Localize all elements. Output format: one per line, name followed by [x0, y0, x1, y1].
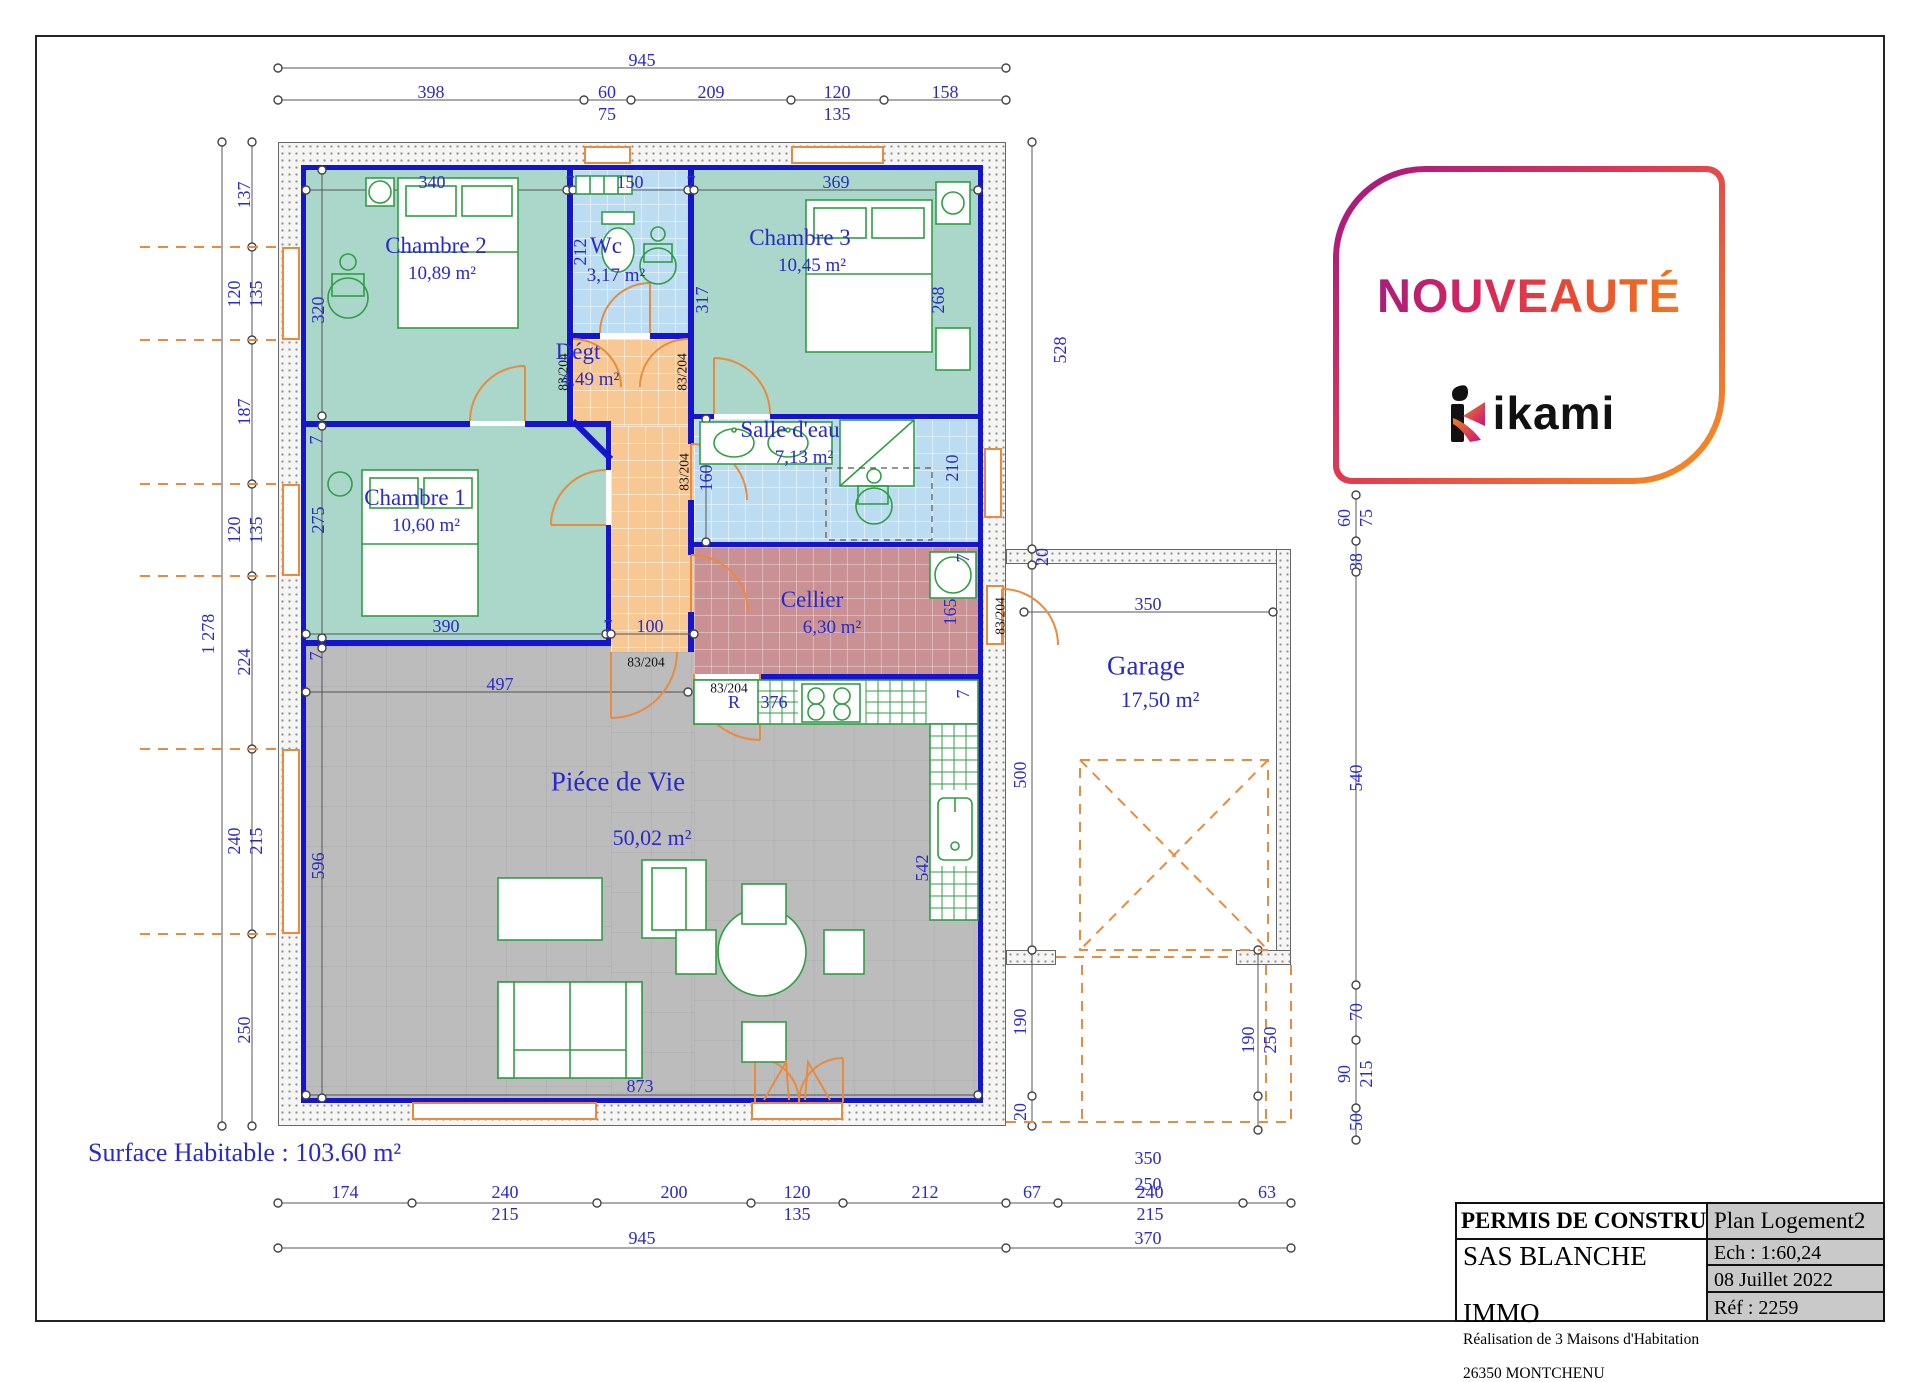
- room-area-wc: 3,17 m²: [587, 265, 645, 287]
- dimension-label: 370: [1135, 1229, 1162, 1247]
- room-name-chambre3: Chambre 3: [749, 225, 851, 251]
- wall: [760, 674, 978, 680]
- dimension-label: 209: [698, 83, 725, 101]
- dimension-label: 540: [1347, 765, 1365, 792]
- garage-wall-right: [1276, 549, 1291, 965]
- dimension-label: 212: [912, 1183, 939, 1201]
- dimension-label: 135: [247, 517, 265, 544]
- titleblock-scale: Ech : 1:60,24: [1706, 1238, 1885, 1266]
- dimension-label: 200: [661, 1183, 688, 1201]
- dimension-label: 224: [235, 649, 253, 676]
- window-chambre2: [282, 247, 300, 340]
- dimension-label: 240: [225, 828, 243, 855]
- garage-wall-stub-right: [1236, 950, 1291, 965]
- room-name-cellier: Cellier: [781, 587, 844, 613]
- dimension-label: 75: [598, 105, 616, 123]
- dimension-label: 250: [235, 1017, 253, 1044]
- dimension-label: 350: [1135, 595, 1162, 613]
- dimension-label: 7: [307, 436, 325, 445]
- dimension-label: 390: [433, 617, 460, 635]
- titleblock-company: SAS BLANCHEIMMO Réalisation de 3 Maisons…: [1455, 1238, 1708, 1322]
- window-chambre3: [791, 146, 884, 164]
- dimension-label: 120: [784, 1183, 811, 1201]
- dimension-label: 369: [823, 173, 850, 191]
- dimension-label: 376: [761, 693, 788, 711]
- wall: [694, 414, 714, 419]
- ikami-logo-icon: [1443, 384, 1487, 442]
- room-name-chambre1: Chambre 1: [364, 485, 466, 511]
- ikami-logo-text: ikami: [1493, 387, 1616, 439]
- dimension-label: 7: [954, 690, 972, 699]
- dimension-label: 500: [1011, 762, 1029, 789]
- room-name-piece-de-vie: Piéce de Vie: [551, 767, 685, 798]
- room-area-chambre3: 10,45 m²: [778, 255, 846, 277]
- dimension-label: 190: [1011, 1009, 1029, 1036]
- dimension-label: 596: [309, 853, 327, 880]
- room-area-degt: 4,49 m²: [561, 369, 619, 391]
- dimension-label: 215: [492, 1205, 519, 1223]
- window-wc: [584, 146, 631, 164]
- room-name-chambre2: Chambre 2: [385, 233, 487, 259]
- room-area-garage: 17,50 m²: [1121, 687, 1200, 713]
- wall: [606, 426, 611, 470]
- door-size-label: 83/204: [710, 681, 748, 695]
- door-size-label: 83/204: [675, 353, 689, 391]
- room-area-cellier: 6,30 m²: [803, 617, 861, 639]
- titleblock-date: 08 Juillet 2022: [1706, 1264, 1885, 1293]
- dimension-label: 190: [1239, 1027, 1257, 1054]
- nouveaute-title: NOUVEAUTÉ: [1339, 268, 1719, 323]
- dimension-label: 158: [932, 83, 959, 101]
- dimension-label: R: [728, 693, 740, 711]
- dimension-label: 135: [824, 105, 851, 123]
- room-chambre2: [306, 170, 567, 421]
- dimension-label: 215: [1137, 1205, 1164, 1223]
- dimension-label: 67: [1023, 1183, 1041, 1201]
- company-name: SAS BLANCHEIMMO: [1463, 1242, 1700, 1327]
- window-sejour-sud: [412, 1102, 597, 1120]
- room-piece-de-vie: [306, 646, 611, 1098]
- room-area-chambre2: 10,89 m²: [408, 263, 476, 285]
- dimension-label: 165: [941, 599, 959, 626]
- dimension-label: 275: [309, 507, 327, 534]
- dimension-label: 542: [913, 855, 931, 882]
- dimension-label: 63: [1258, 1183, 1276, 1201]
- dimension-label: 210: [943, 455, 961, 482]
- dimension-label: 945: [629, 51, 656, 69]
- dimension-label: 215: [1357, 1061, 1375, 1088]
- dimension-label: 7: [687, 173, 696, 191]
- dimension-label: 90: [1335, 1065, 1353, 1083]
- dimension-label: 187: [235, 399, 253, 426]
- dimension-label: 317: [693, 287, 711, 314]
- dimension-label: 873: [627, 1077, 654, 1095]
- room-name-wc: Wc: [590, 233, 622, 259]
- wall: [650, 333, 694, 339]
- dimension-label: 212: [571, 239, 589, 266]
- dimension-label: 75: [1357, 509, 1375, 527]
- window-salle-deau: [984, 448, 1002, 518]
- dimension-label: 398: [418, 83, 445, 101]
- window-chambre1: [282, 484, 300, 576]
- titleblock-doc-type: PERMIS DE CONSTRUIRE: [1455, 1202, 1708, 1240]
- dimension-label: 120: [225, 517, 243, 544]
- dimension-label: 215: [247, 828, 265, 855]
- dimension-label: 135: [784, 1205, 811, 1223]
- wall: [688, 419, 694, 444]
- dimension-label: 60: [1335, 509, 1353, 527]
- dimension-label: 38: [1347, 553, 1365, 571]
- dimension-label: 137: [235, 182, 253, 209]
- door-size-label: 83/204: [677, 453, 691, 491]
- dimension-label: 20: [1011, 1103, 1029, 1121]
- titleblock-plan-name: Plan Logement2: [1706, 1202, 1885, 1240]
- dimension-label: 70: [1347, 1003, 1365, 1021]
- dimension-label: 350: [1135, 1149, 1162, 1167]
- dimension-label: 160: [697, 465, 715, 492]
- door-size-label: 83/204: [627, 655, 665, 669]
- dimension-label: 497: [487, 675, 514, 693]
- dimension-label: 340: [419, 173, 446, 191]
- dimension-label: 1 278: [199, 614, 217, 655]
- dimension-label: 250: [1261, 1027, 1279, 1054]
- dimension-label: 100: [637, 617, 664, 635]
- garage-wall-stub-left: [1006, 950, 1056, 965]
- room-area-piece-de-vie: 50,02 m²: [613, 825, 692, 851]
- nouveaute-badge: NOUVEAUTÉ ikami: [1333, 166, 1725, 484]
- nouveaute-badge-inner: NOUVEAUTÉ ikami: [1339, 172, 1719, 478]
- titleblock-reference: Réf : 2259: [1706, 1291, 1885, 1322]
- room-name-degt: Dégt: [556, 339, 601, 365]
- room-name-salle-deau: Salle d'eau: [740, 417, 839, 443]
- wall: [306, 421, 470, 427]
- room-piece-de-vie-2: [611, 652, 694, 1098]
- dimension-label: 50: [1347, 1113, 1365, 1131]
- wall: [688, 612, 694, 652]
- dimension-label: 60: [598, 83, 616, 101]
- room-name-garage: Garage: [1107, 651, 1185, 682]
- door-size-label: 83/204: [993, 597, 1007, 635]
- window-sejour: [282, 749, 300, 934]
- dimension-label: 240: [492, 1183, 519, 1201]
- dimension-label: 240: [1137, 1183, 1164, 1201]
- room-area-salle-deau: 7,13 m²: [775, 447, 833, 469]
- dimension-label: 150: [617, 173, 644, 191]
- wall: [694, 542, 978, 547]
- dimension-label: 528: [1051, 337, 1069, 364]
- dimension-label: 135: [247, 281, 265, 308]
- dimension-label: 268: [929, 287, 947, 314]
- surface-habitable-label: Surface Habitable : 103.60 m²: [88, 1138, 401, 1168]
- wall: [525, 421, 611, 427]
- dimension-label: 945: [629, 1229, 656, 1247]
- room-piece-de-vie-3: [694, 680, 978, 1098]
- dimension-label: 320: [309, 297, 327, 324]
- ikami-logo: ikami: [1339, 384, 1719, 442]
- dimension-label: 7: [307, 652, 325, 661]
- wall: [306, 640, 611, 646]
- dimension-label: 174: [332, 1183, 359, 1201]
- dimension-label: 7: [566, 173, 575, 191]
- dimension-label: 20: [1033, 548, 1051, 566]
- room-area-chambre1: 10,60 m²: [392, 515, 460, 537]
- dimension-label: 7: [954, 554, 972, 563]
- dimension-label: 120: [824, 83, 851, 101]
- entry-door: [751, 1102, 843, 1120]
- dimension-label: 120: [225, 281, 243, 308]
- dimension-label: 7: [604, 617, 613, 635]
